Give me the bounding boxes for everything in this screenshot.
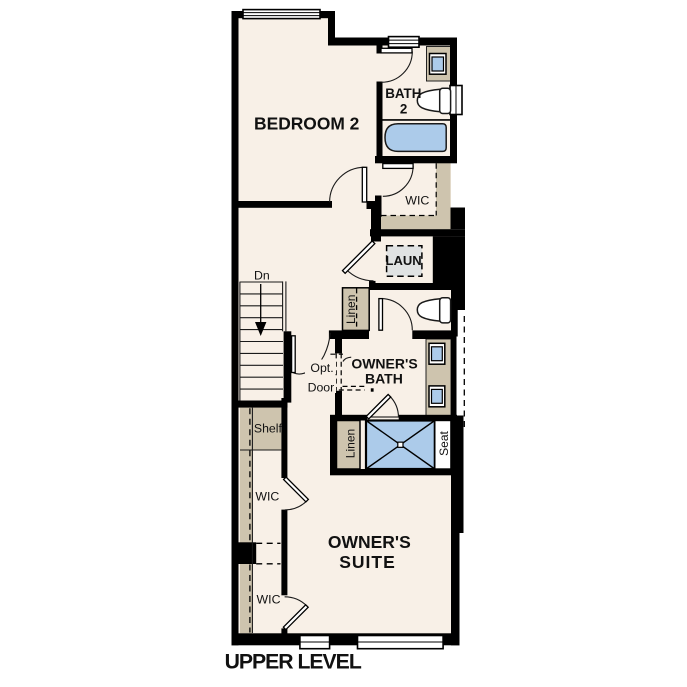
svg-text:UPPER LEVEL: UPPER LEVEL <box>225 651 362 674</box>
svg-text:OWNER'S: OWNER'S <box>328 532 411 552</box>
svg-text:WIC: WIC <box>255 489 279 503</box>
svg-text:Linen: Linen <box>343 429 357 458</box>
svg-text:2: 2 <box>400 102 407 117</box>
svg-text:Seat: Seat <box>437 430 451 455</box>
svg-text:SUITE: SUITE <box>339 552 396 572</box>
svg-text:WIC: WIC <box>257 592 281 606</box>
svg-text:BATH: BATH <box>385 86 421 101</box>
svg-text:Dn: Dn <box>254 268 270 282</box>
svg-text:LAUN: LAUN <box>386 253 422 268</box>
svg-text:OWNER'S: OWNER'S <box>351 356 417 372</box>
svg-text:BATH: BATH <box>365 371 403 387</box>
svg-text:Opt.: Opt. <box>310 361 333 375</box>
svg-text:WIC: WIC <box>405 193 429 207</box>
svg-text:Door: Door <box>308 381 335 395</box>
svg-text:Linen: Linen <box>344 295 358 324</box>
svg-text:Shelf: Shelf <box>254 422 283 436</box>
svg-text:BEDROOM 2: BEDROOM 2 <box>254 113 359 133</box>
